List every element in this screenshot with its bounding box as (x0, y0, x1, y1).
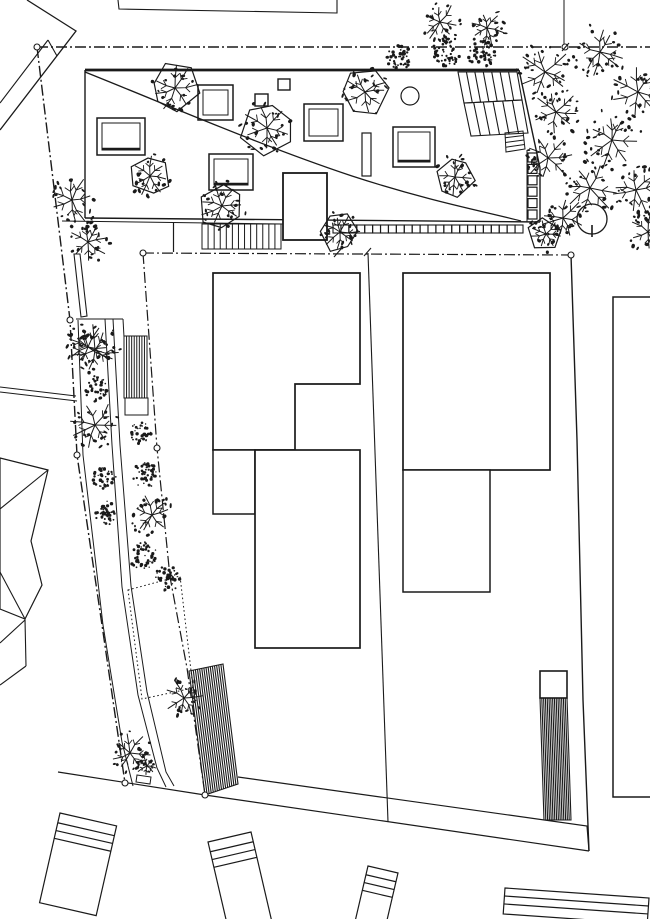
boundary-node (568, 252, 574, 258)
boundary-node (67, 317, 73, 323)
neighbor-bottom-band (503, 888, 649, 919)
shrub-icon (84, 375, 108, 400)
skylight-5 (393, 127, 435, 167)
building-right-annex (403, 470, 490, 592)
neighbor-right-building (613, 297, 650, 797)
shrub-icon (92, 467, 117, 490)
neighbor-left-house-hip-a (0, 470, 48, 509)
tree-icon (611, 67, 650, 118)
garden-bench (136, 775, 151, 784)
shrub-icon (94, 501, 115, 526)
boundary-node (122, 780, 128, 786)
path-stair (124, 336, 147, 398)
tree-icon (471, 11, 507, 46)
street-edge-bottom (58, 772, 589, 851)
neighbor-left-gable-a (0, 620, 25, 643)
path-stair-landing (125, 398, 148, 415)
tree-icon (613, 164, 650, 219)
tree-icon (583, 109, 643, 169)
skylight-2 (198, 85, 233, 120)
shrub-icon (130, 541, 156, 569)
tree-icon (113, 730, 152, 774)
neighbor-left-fence-b (0, 392, 77, 401)
boundary-node (74, 452, 80, 458)
parked-vehicle-2 (208, 832, 273, 919)
parked-vehicle-1 (40, 813, 117, 916)
street-stair-landing (540, 671, 567, 698)
neighbor-left-gable-b (0, 666, 26, 685)
boundary-node (202, 792, 208, 798)
neighbor-top-left-wall-inner (0, 40, 48, 103)
tree-icon (525, 135, 572, 177)
boundary-node (154, 445, 160, 451)
shrub-icon (130, 422, 152, 446)
skylight-3 (209, 154, 253, 190)
roof-circle (401, 87, 419, 105)
boundary-tick (364, 248, 371, 256)
building-left-annex (213, 450, 255, 514)
skylight-1 (97, 118, 145, 155)
garden-wall (74, 254, 87, 317)
shrub-icon (132, 462, 156, 487)
boundary-node (140, 250, 146, 256)
neighbor-left-house-outline (0, 458, 48, 619)
garden-stair-large (189, 664, 238, 795)
neighbor-top-left-wall (0, 0, 76, 130)
tree-icon (423, 2, 462, 44)
tree-canopy-icon (341, 66, 389, 114)
tree-canopy-icon (238, 101, 293, 155)
terrace-stair (202, 224, 281, 249)
proposed-footprint-dotted (128, 576, 193, 699)
parcel-boundary-horizontal (143, 253, 571, 255)
roof-stair-flight-1 (458, 72, 522, 103)
street-edge-top (238, 777, 589, 851)
building-left-lower (255, 450, 360, 648)
site-plan-drawing (0, 0, 650, 919)
stair-core-volume (283, 173, 327, 240)
roof-vent-1 (278, 79, 290, 90)
shrub-icon (386, 44, 411, 70)
site-plan (0, 0, 650, 919)
roof-stair-flight-2 (464, 100, 528, 136)
skylight-4 (304, 104, 343, 141)
tree-canopy-icon (131, 153, 172, 199)
walkway-line-a (105, 319, 166, 787)
shrub-icon (155, 566, 181, 591)
neighbor-left-house-hip-b (0, 572, 25, 619)
tree-icon (572, 23, 624, 77)
neighbor-left-fence-a (0, 387, 76, 396)
street-stair-ladder (540, 698, 571, 820)
parcel-division-line (368, 253, 388, 822)
tree-icon (531, 89, 580, 135)
neighbor-left-gable-c (25, 619, 26, 666)
tree-icon (65, 323, 107, 371)
parked-vehicle-3 (354, 866, 398, 919)
tree-icon (629, 210, 650, 251)
tree-icon (541, 200, 582, 237)
roof-vent-2 (255, 94, 268, 106)
trellis-square-row (333, 225, 523, 233)
roof-chimney (362, 133, 371, 176)
building-left-upper (213, 273, 360, 450)
neighbor-top-edge (118, 0, 337, 13)
boundary-node (34, 44, 40, 50)
tree-canopy-icon (435, 153, 478, 197)
shrub-icon (467, 40, 496, 67)
planting-bed-right-edge (123, 319, 124, 337)
tree-icon (131, 496, 172, 538)
parcel-boundary-right (571, 255, 589, 851)
property-boundary-left (37, 47, 125, 783)
neighbor-top-left-step (48, 40, 57, 56)
tree-icon (516, 44, 571, 96)
building-right-main (403, 273, 550, 470)
